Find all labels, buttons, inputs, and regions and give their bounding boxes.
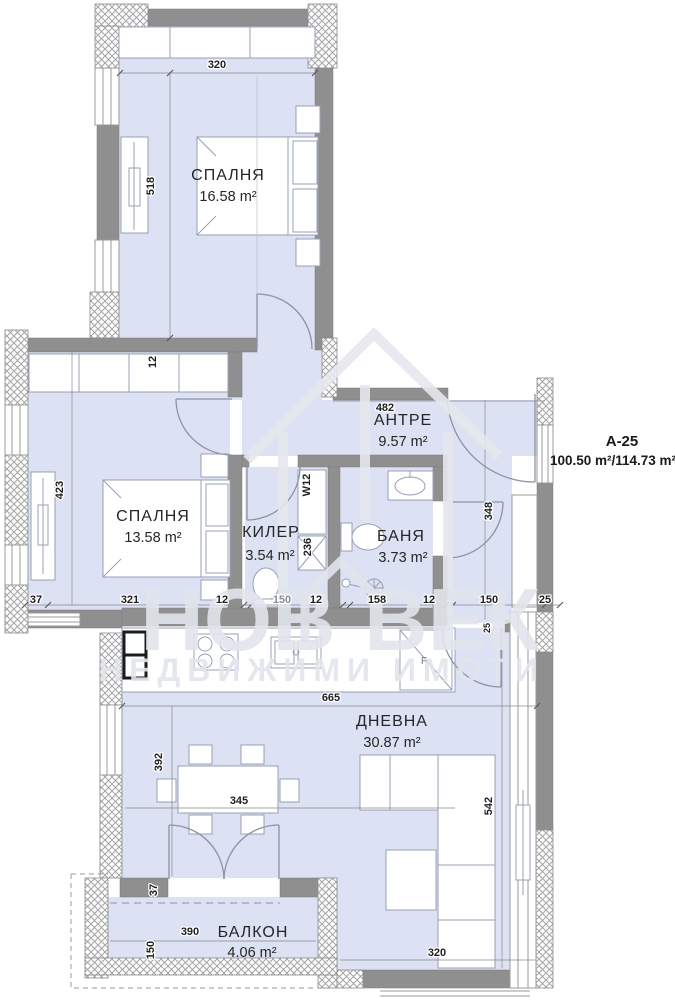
dim-25-vert: 25	[482, 623, 492, 633]
dim-423: 423	[54, 481, 66, 499]
unit-areas: 100.50 m²/114.73 m²	[550, 453, 675, 468]
dim-345: 345	[230, 795, 248, 807]
room-area-balcony: 4.06 m²	[227, 945, 276, 961]
dim-37: 37	[30, 594, 42, 606]
nightstand-icon	[201, 454, 228, 477]
dim-321: 321	[121, 594, 139, 606]
dim-12a: 12	[216, 594, 228, 606]
radiator-icon	[31, 472, 55, 580]
coffee-table-icon	[386, 850, 436, 910]
nightstand-icon	[296, 239, 320, 266]
room-area-bath: 3.73 m²	[378, 550, 427, 566]
dim-518: 518	[145, 177, 157, 195]
unit-title: A-25 100.50 m²/114.73 m²	[550, 433, 675, 468]
dim-25: 25	[539, 594, 551, 606]
dim-12-wall: 12	[147, 356, 159, 368]
dim-37-balcony: 37	[148, 884, 160, 896]
room-label-bedroom1: СПАЛНЯ	[191, 167, 265, 184]
room-label-closet: КИЛЕР	[242, 524, 300, 541]
wardrobe-icon	[29, 354, 228, 392]
window-icon	[380, 991, 530, 996]
dim-320-bottom: 320	[428, 947, 446, 959]
room-area-bedroom1: 16.58 m²	[199, 189, 256, 205]
sink-icon	[388, 471, 433, 500]
dim-390: 390	[181, 926, 199, 938]
dim-320-top: 320	[208, 59, 226, 71]
window-icon	[95, 68, 119, 125]
window-icon	[100, 705, 122, 775]
dim-392: 392	[153, 753, 165, 771]
dim-542: 542	[483, 797, 495, 815]
floor-plan-page: НОВ ВЕК НЕДВИЖИМИ ИМОТИ СПАЛНЯ 16.58 m² …	[0, 0, 675, 1000]
radiator-icon	[121, 137, 148, 233]
room-area-living: 30.87 m²	[363, 735, 420, 751]
unit-number: A-25	[606, 433, 639, 450]
room-label-living: ДНЕВНА	[356, 713, 428, 730]
window-icon	[95, 240, 119, 292]
room-area-hall: 9.57 m²	[378, 434, 427, 450]
room-label-balcony: БАЛКОН	[218, 924, 289, 941]
room-area-bedroom2: 13.58 m²	[124, 530, 181, 546]
dim-236: 236	[302, 538, 314, 556]
dim-158: 158	[368, 594, 386, 606]
dim-w12: W12	[301, 474, 313, 497]
radiator-icon	[516, 790, 530, 895]
dim-12c: 12	[423, 594, 435, 606]
room-label-bath: БАНЯ	[377, 528, 425, 545]
dim-482: 482	[376, 402, 394, 414]
window-icon	[5, 405, 28, 455]
fridge-label: F	[421, 656, 427, 667]
room-area-closet: 3.54 m²	[245, 548, 294, 564]
window-icon	[5, 545, 28, 585]
bed-icon	[197, 137, 318, 235]
watermark-line2: НЕДВИЖИМИ ИМОТИ	[99, 652, 545, 688]
wardrobe-icon	[119, 27, 315, 58]
dim-150a: 150	[273, 594, 291, 606]
room-label-hall: АНТРЕ	[374, 412, 432, 429]
dim-12b: 12	[310, 594, 322, 606]
floor-plan-drawing: НОВ ВЕК НЕДВИЖИМИ ИМОТИ СПАЛНЯ 16.58 m² …	[0, 0, 675, 1000]
dim-348: 348	[483, 502, 495, 520]
room-label-bedroom2: СПАЛНЯ	[116, 508, 190, 525]
dim-150b: 150	[480, 594, 498, 606]
dim-150-balcony: 150	[145, 941, 157, 959]
window-icon	[28, 613, 80, 626]
bed-icon	[103, 480, 230, 577]
dim-665: 665	[322, 692, 340, 704]
nightstand-icon	[296, 106, 320, 133]
